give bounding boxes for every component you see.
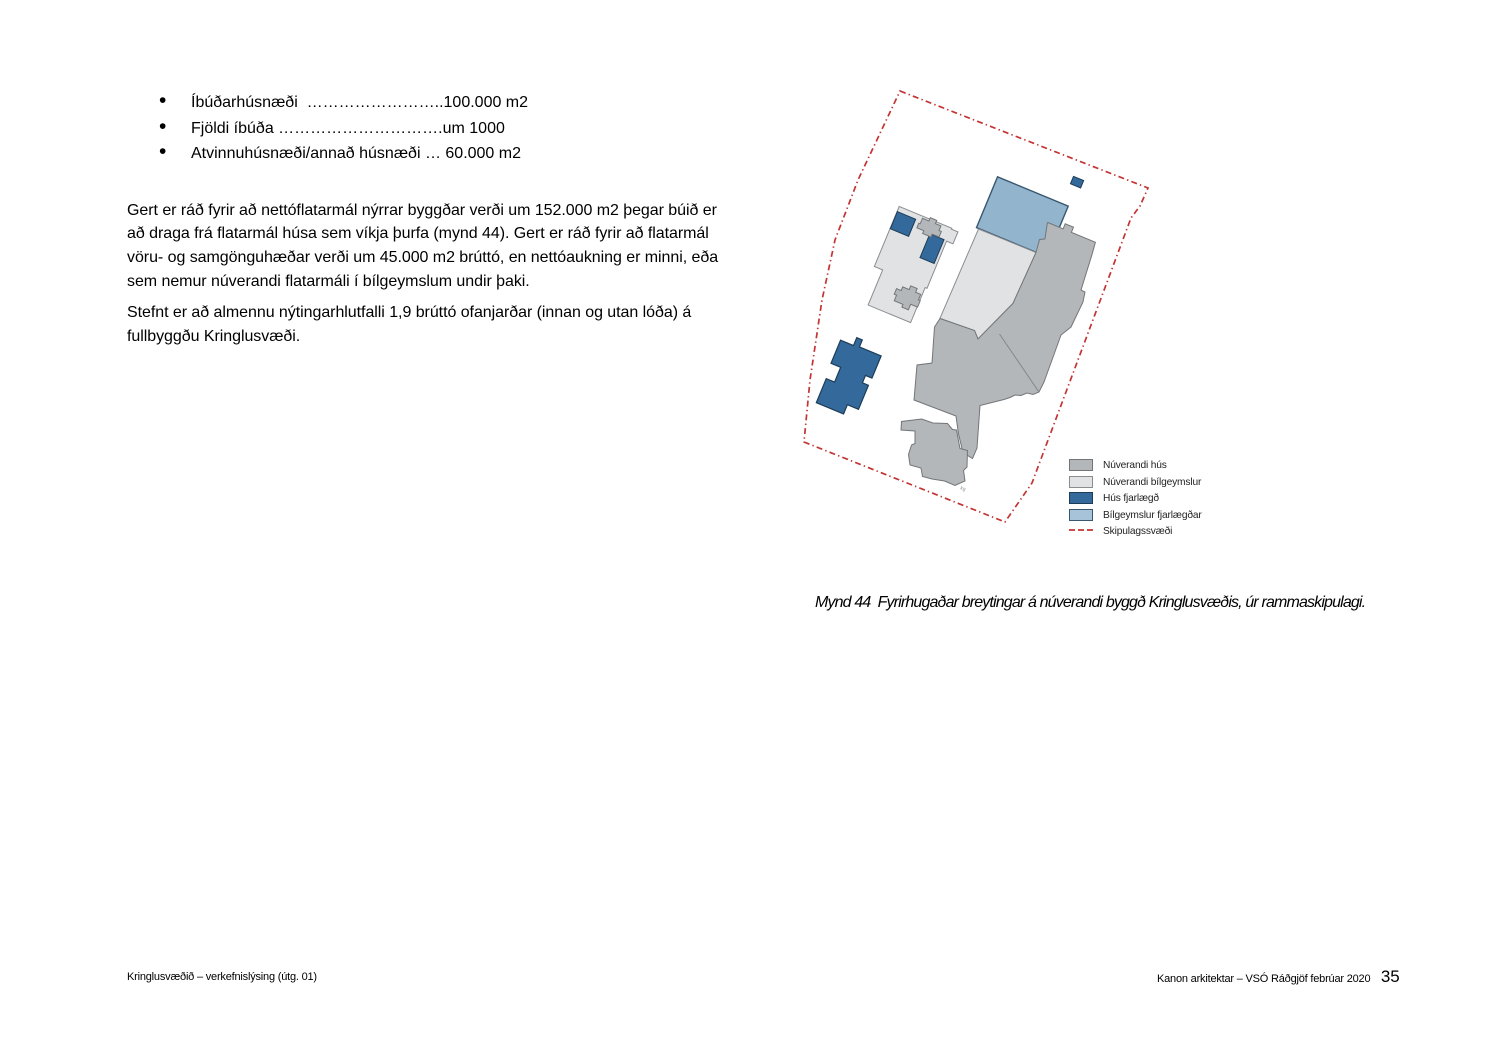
svg-text:kg: kg [959,485,966,493]
